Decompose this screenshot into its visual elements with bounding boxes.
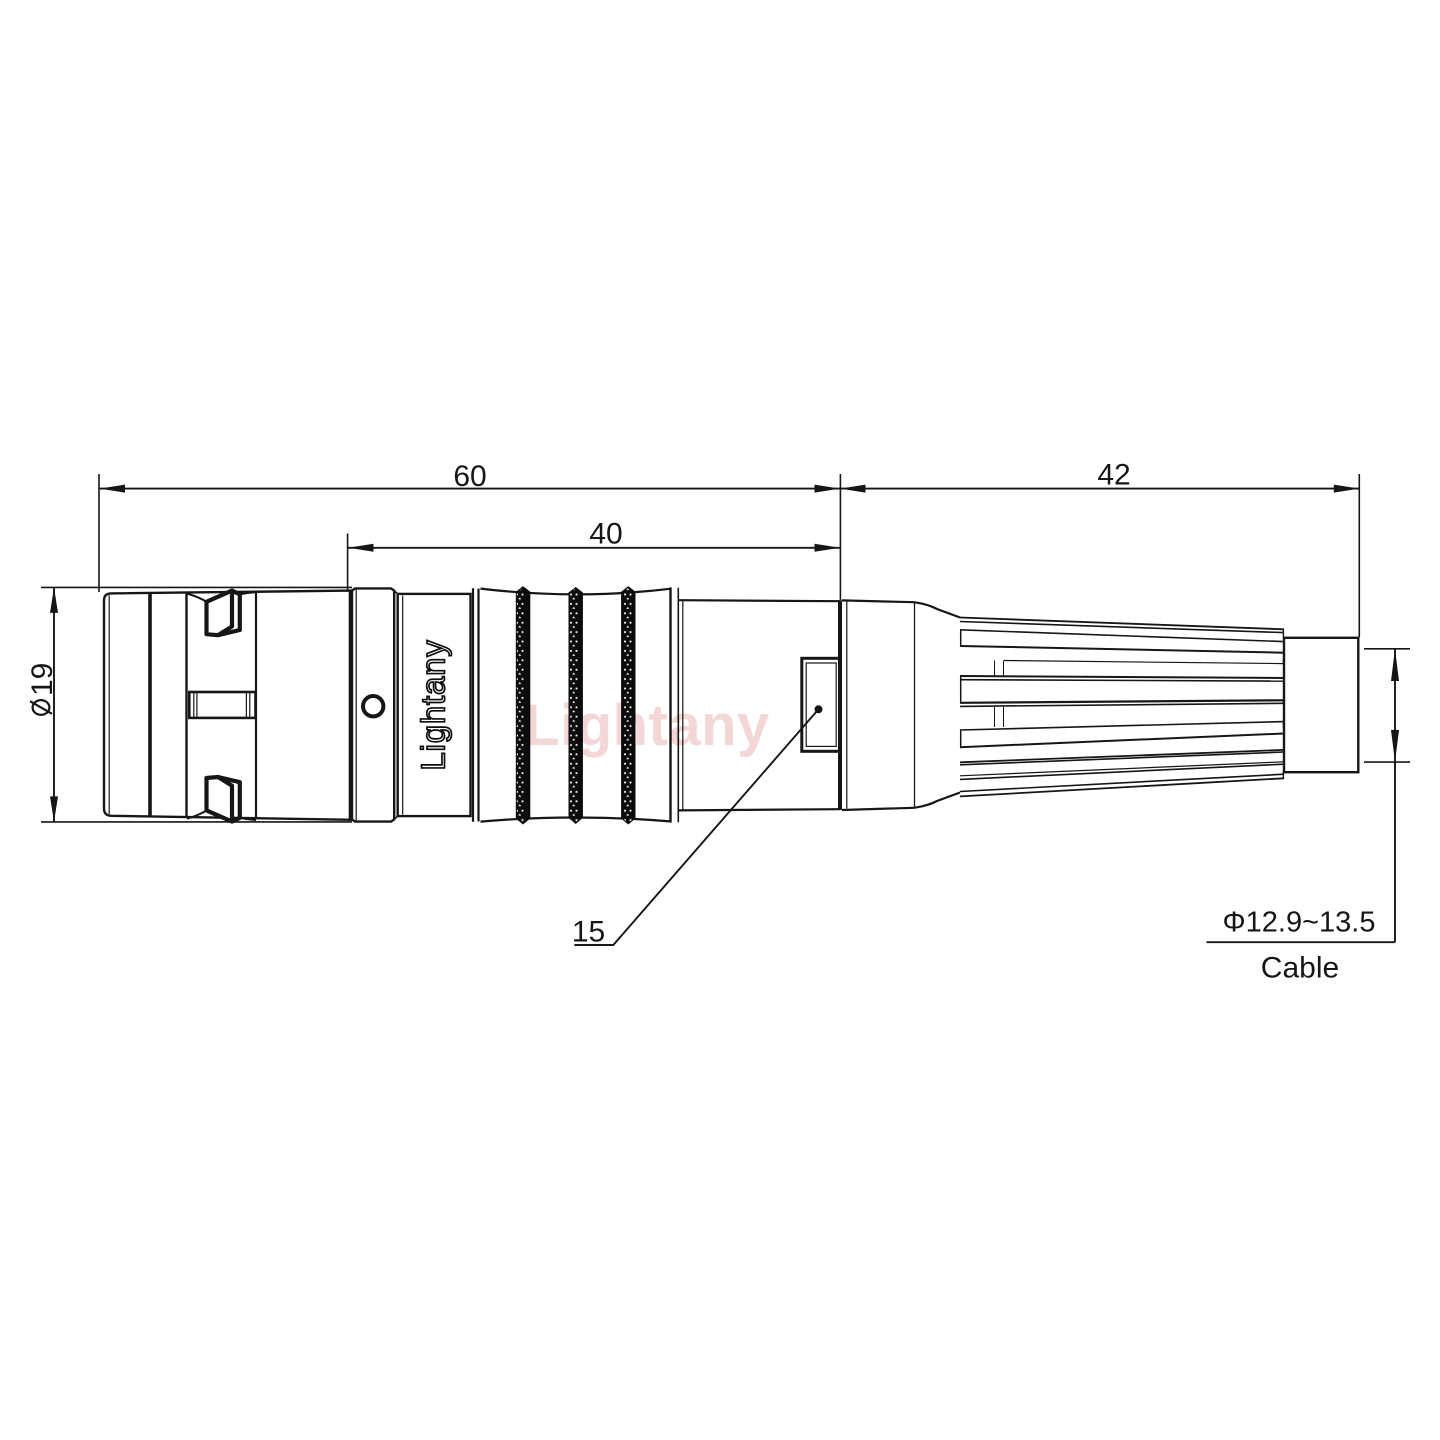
svg-text:Lightany: Lightany <box>415 639 452 770</box>
svg-text:Φ12.9~13.5: Φ12.9~13.5 <box>1223 907 1376 939</box>
svg-text:42: 42 <box>1097 459 1130 492</box>
svg-text:Cable: Cable <box>1261 952 1339 985</box>
svg-text:60: 60 <box>453 460 486 493</box>
svg-text:15: 15 <box>572 916 605 949</box>
svg-text:40: 40 <box>589 518 622 551</box>
svg-text:19: 19 <box>26 663 59 696</box>
svg-text:Lightany: Lightany <box>524 693 770 758</box>
